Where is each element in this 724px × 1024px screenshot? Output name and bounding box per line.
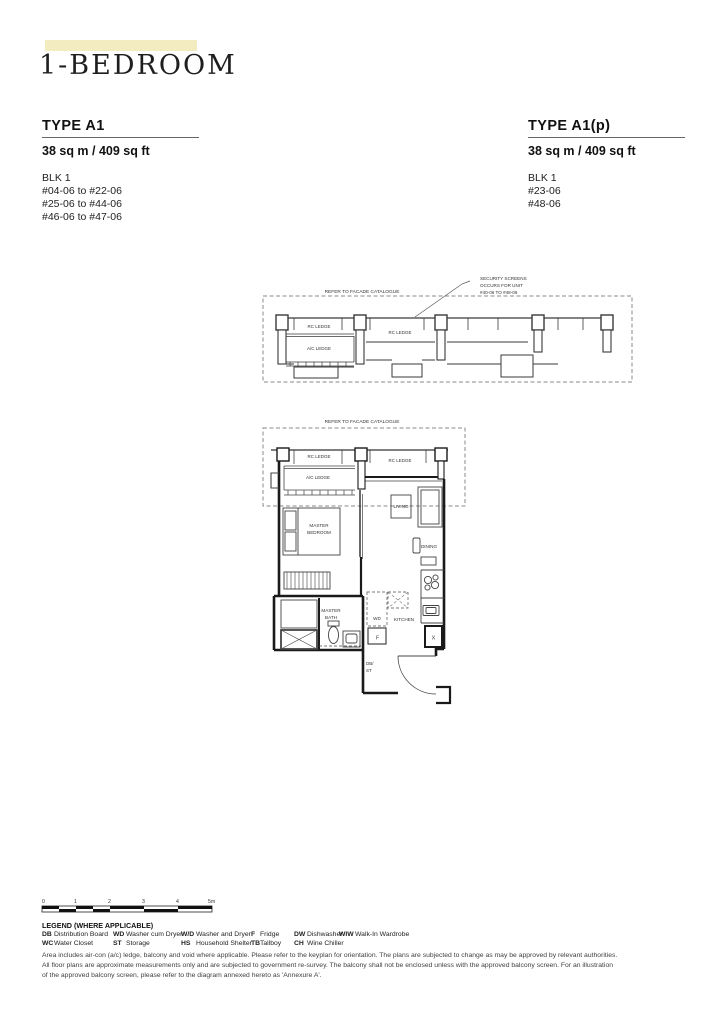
security-note-line3: #40-06 TO #48-06 bbox=[480, 290, 518, 295]
unit-floor-plan: REFER TO FACADE CATALOGUE RC LEDGE RC LE… bbox=[258, 415, 473, 710]
dbst-label2: ST bbox=[366, 668, 372, 673]
hob-burner bbox=[433, 575, 438, 580]
type-a1p-block: TYPE A1(p) 38 sq m / 409 sq ft BLK 1 #23… bbox=[528, 118, 718, 211]
legend-desc: Water Closet bbox=[54, 940, 93, 947]
legend-col-5: DWDishwasher CHWine Chiller bbox=[294, 930, 344, 948]
scale-tick-0: 0 bbox=[42, 899, 45, 905]
legend-col-4: FFridge TBTallboy bbox=[251, 930, 281, 948]
type-a1p-units-1: #23-06 bbox=[528, 185, 718, 198]
rc-ledge-right-label: RC LEDGE bbox=[388, 458, 411, 463]
legend-abbr: CH bbox=[294, 939, 307, 948]
toilet bbox=[328, 621, 339, 626]
floorplan-page: { "page_title": "1-BEDROOM", "types": { … bbox=[0, 0, 724, 1024]
shaft-x-label: X bbox=[432, 636, 436, 642]
legend-desc: Fridge bbox=[260, 931, 279, 938]
legend-abbr: TB bbox=[251, 939, 260, 948]
master-bedroom-label: MASTER bbox=[309, 523, 329, 528]
rc-ledge-left-label: RC LEDGE bbox=[307, 454, 330, 459]
scale-bar-segments bbox=[42, 906, 212, 912]
master-bath-label: MASTER bbox=[321, 608, 341, 613]
legend-desc: Household Shelter bbox=[196, 940, 252, 947]
legend-desc: Washer cum Dryer bbox=[126, 931, 182, 938]
scale-tick-3: 3 bbox=[142, 899, 145, 905]
plan-ledge-lines bbox=[271, 450, 442, 559]
pillow bbox=[285, 532, 296, 551]
legend-desc: Tallboy bbox=[260, 940, 281, 947]
living-label: LIVING bbox=[393, 504, 408, 509]
hob-burner bbox=[425, 585, 430, 590]
dining-table bbox=[421, 557, 436, 565]
type-a1-rule bbox=[42, 137, 199, 138]
type-a1p-title: TYPE A1(p) bbox=[528, 118, 718, 134]
legend-abbr: WD bbox=[113, 930, 126, 939]
facade-section-diagram: REFER TO FACADE CATALOGUE SECURITY SCREE… bbox=[258, 272, 638, 388]
fridge-label: F bbox=[376, 636, 379, 642]
type-a1-units-1: #04-06 to #22-06 bbox=[42, 185, 232, 198]
facade-rc-ledge-left-label: RC LEDGE bbox=[307, 324, 330, 329]
scale-tick-1: 1 bbox=[74, 899, 77, 905]
legend-desc: Dishwasher bbox=[307, 931, 343, 938]
type-a1-units-3: #46-06 to #47-06 bbox=[42, 211, 232, 224]
sofa bbox=[418, 487, 442, 527]
master-bath-label2: BATH bbox=[325, 615, 337, 620]
legend-desc: Storage bbox=[126, 940, 150, 947]
type-a1-area: 38 sq m / 409 sq ft bbox=[42, 144, 232, 158]
door-swing-arc bbox=[398, 656, 436, 694]
scale-tick-2: 2 bbox=[108, 899, 111, 905]
facade-ac-ledge-label: A/C LEDGE bbox=[307, 346, 331, 351]
type-a1p-area: 38 sq m / 409 sq ft bbox=[528, 144, 718, 158]
security-note-line2: OCCURS FOR UNIT bbox=[480, 283, 523, 288]
legend-desc: Wine Chiller bbox=[307, 940, 344, 947]
security-leader-line bbox=[415, 281, 470, 317]
dining-chair bbox=[413, 538, 420, 553]
legend-abbr: W/D bbox=[181, 930, 196, 939]
legend-col-6: WIWWalk-In Wardrobe bbox=[339, 930, 409, 939]
hob-burner bbox=[431, 581, 438, 588]
legend-desc: Distribution Board bbox=[54, 931, 108, 938]
legend-title: LEGEND (WHERE APPLICABLE) bbox=[42, 921, 153, 930]
legend-desc: Washer and Dryer bbox=[196, 931, 251, 938]
plan-facade-note: REFER TO FACADE CATALOGUE bbox=[325, 419, 400, 425]
scale-tick-5: 5m bbox=[208, 899, 215, 905]
legend-abbr: ST bbox=[113, 939, 126, 948]
vanity bbox=[343, 631, 360, 647]
ac-ledge-label: A/C LEDGE bbox=[306, 475, 330, 480]
dining-label: DINING bbox=[421, 544, 438, 549]
legend-col-3: W/DWasher and Dryer HSHousehold Shelter bbox=[181, 930, 252, 948]
type-a1p-blk: BLK 1 bbox=[528, 172, 718, 185]
disclaimer-text: Area includes air-con (a/c) ledge, balco… bbox=[42, 951, 620, 981]
pillow bbox=[285, 511, 296, 530]
kitchen-sink bbox=[423, 606, 439, 616]
page-title: 1-BEDROOM bbox=[39, 50, 237, 81]
bath-closet bbox=[281, 600, 317, 628]
facade-rc-ledge-right-label: RC LEDGE bbox=[388, 330, 411, 335]
type-a1-units-2: #25-06 to #44-06 bbox=[42, 198, 232, 211]
facade-dashed-boundary bbox=[263, 296, 632, 382]
kitchen-label: KITCHEN bbox=[394, 617, 414, 622]
type-a1-blk: BLK 1 bbox=[42, 172, 232, 185]
type-a1p-units-2: #48-06 bbox=[528, 198, 718, 211]
entry-door bbox=[398, 656, 436, 694]
plan-walls bbox=[274, 461, 450, 703]
legend-abbr: HS bbox=[181, 939, 196, 948]
legend-desc: Walk-In Wardrobe bbox=[355, 931, 409, 938]
legend-abbr: F bbox=[251, 930, 260, 939]
type-a1-title: TYPE A1 bbox=[42, 118, 232, 134]
facade-note: REFER TO FACADE CATALOGUE bbox=[325, 289, 400, 295]
legend-abbr: WIW bbox=[339, 930, 355, 939]
legend-col-2: WDWasher cum Dryer STStorage bbox=[113, 930, 182, 948]
type-a1-block: TYPE A1 38 sq m / 409 sq ft BLK 1 #04-06… bbox=[42, 118, 232, 224]
legend-col-1: DBDistribution Board WCWater Closet bbox=[42, 930, 108, 948]
legend-abbr: DB bbox=[42, 930, 54, 939]
legend-abbr: WC bbox=[42, 939, 54, 948]
master-bedroom-label2: BEDROOM bbox=[307, 530, 331, 535]
legend-abbr: DW bbox=[294, 930, 307, 939]
scale-bar: 0 1 2 3 4 5m bbox=[40, 897, 220, 919]
hob-burner bbox=[424, 576, 431, 583]
dbst-label: DB/ bbox=[366, 661, 374, 666]
security-note-line1: SECURITY SCREENS bbox=[480, 276, 527, 281]
wd-label: WD bbox=[373, 616, 381, 621]
scale-tick-4: 4 bbox=[176, 899, 179, 905]
type-a1p-rule bbox=[528, 137, 685, 138]
